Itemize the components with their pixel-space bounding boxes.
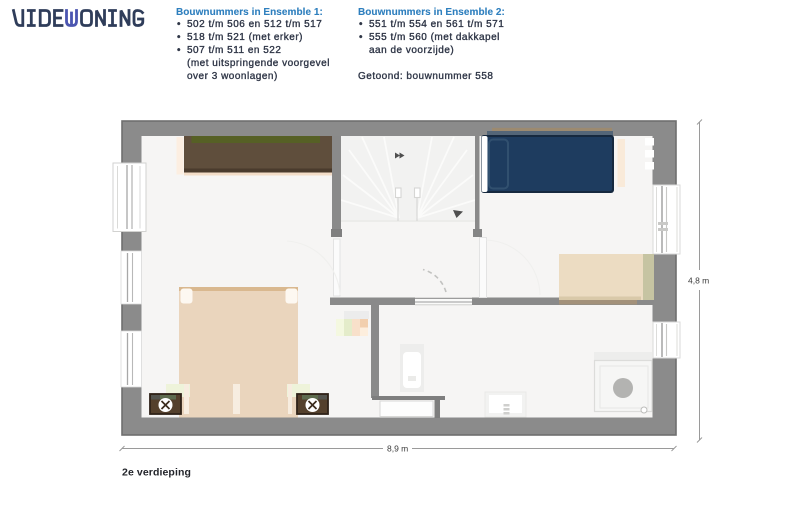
svg-text:2e verdieping: 2e verdieping [122,467,191,479]
svg-text:4,8 m: 4,8 m [688,276,709,286]
svg-text:8,9 m: 8,9 m [387,444,408,454]
